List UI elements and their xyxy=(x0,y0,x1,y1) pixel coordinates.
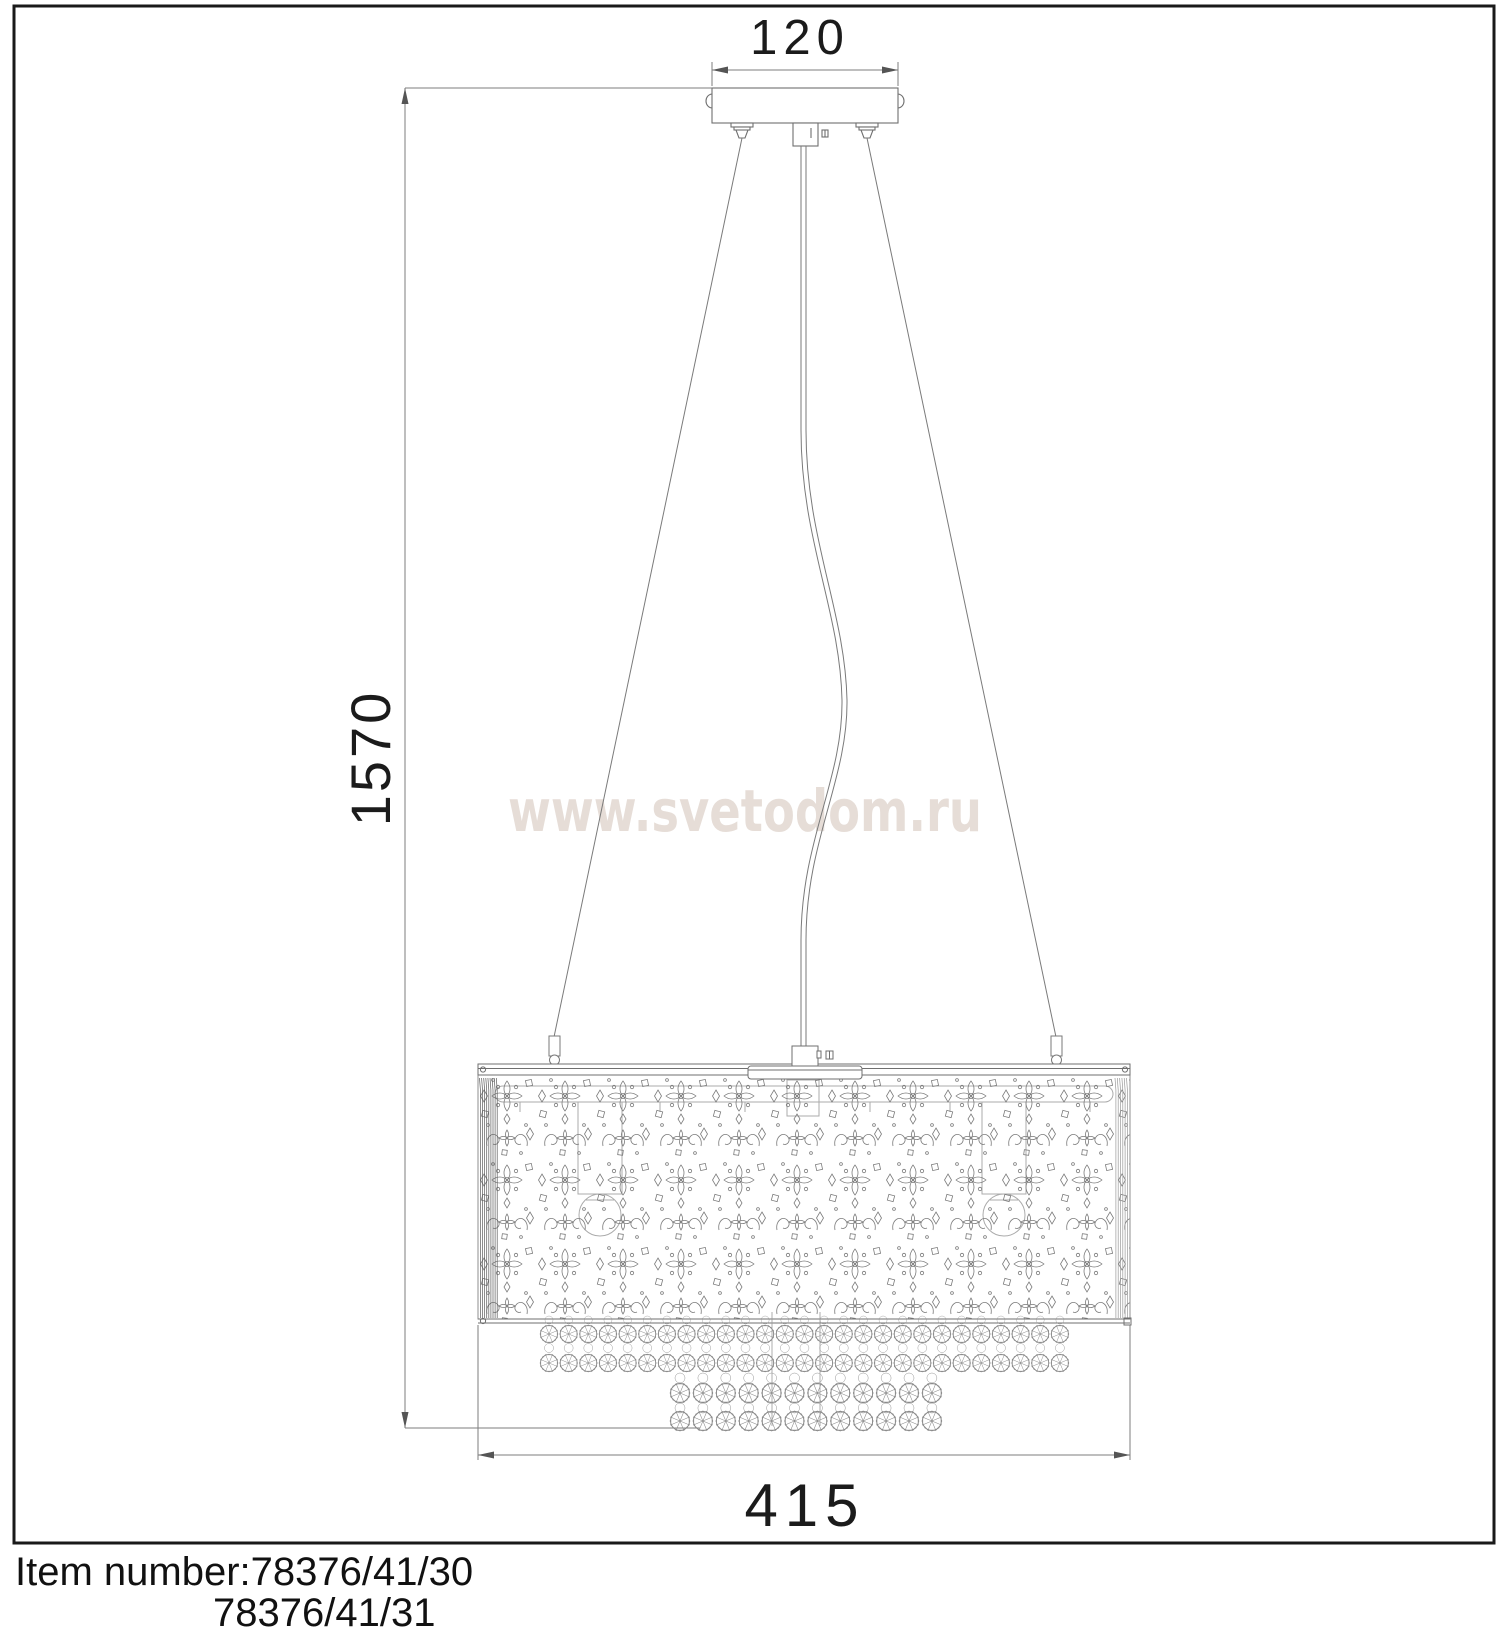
watermark: www.svetodom.ru xyxy=(508,777,982,845)
right-cable xyxy=(867,138,1056,1037)
item-number: Item number:78376/41/30 78376/41/31 xyxy=(15,1550,473,1629)
technical-drawing-canvas: www.svetodom.ru 120 xyxy=(0,0,1500,1629)
ceiling-canopy xyxy=(706,88,904,146)
dimension-canopy-width xyxy=(712,62,898,86)
lampshade xyxy=(478,1046,1131,1431)
suspension-cables xyxy=(549,138,1062,1065)
canopy-width-label: 120 xyxy=(750,11,850,65)
overall-height-label: 1570 xyxy=(339,690,402,827)
crystal-bead-strands xyxy=(540,1316,1069,1431)
item-number-line1: Item number:78376/41/30 xyxy=(15,1550,473,1594)
lace-drum xyxy=(478,1075,1130,1319)
shade-width-label: 415 xyxy=(744,1472,865,1539)
item-number-line2: 78376/41/31 xyxy=(213,1591,435,1629)
left-cable xyxy=(554,138,742,1037)
